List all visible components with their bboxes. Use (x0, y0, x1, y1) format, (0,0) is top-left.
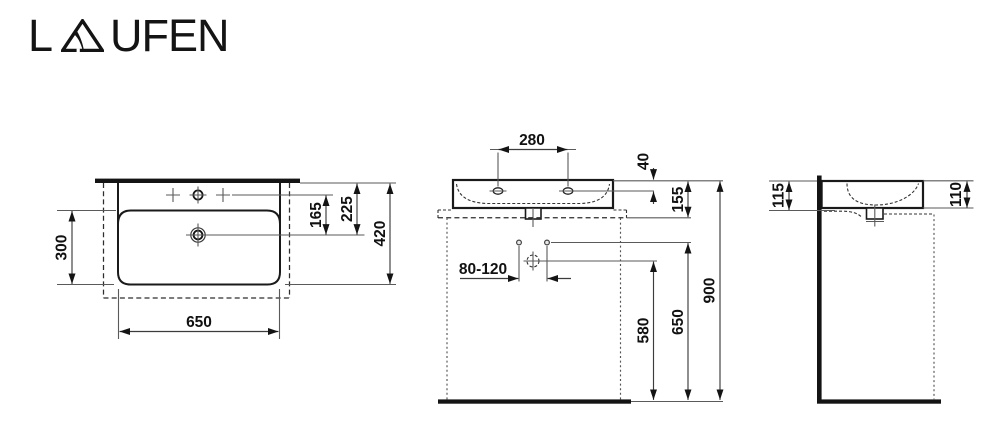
dim-front-rim-to-taphole: 40 (636, 153, 654, 204)
dim-front-taphole-spacing: 280 (499, 132, 568, 150)
svg-text:110: 110 (948, 182, 965, 207)
dim-front-drain-height: 580 (636, 262, 654, 400)
svg-text:580: 580 (636, 318, 653, 344)
dimension-drawing-sheet: L UFEN (0, 0, 1000, 446)
front-view: 280 40 155 80-120 580 (438, 132, 723, 404)
dim-plan-bowl-depth: 300 (54, 211, 73, 284)
dim-side-basin-height: 110 (948, 181, 967, 207)
dim-front-rim-to-underside: 155 (670, 182, 688, 218)
svg-text:155: 155 (670, 186, 687, 212)
plan-taphole-left-icon (166, 188, 180, 202)
svg-text:900: 900 (702, 278, 719, 304)
front-fixing-hole-right-icon (545, 240, 550, 245)
side-view: 115 110 (769, 176, 974, 404)
side-wall-line (817, 176, 822, 404)
side-floor-line (817, 399, 941, 403)
dim-front-rim-height: 900 (702, 181, 721, 400)
dim-plan-width: 650 (120, 314, 279, 332)
dim-front-fixings-height: 650 (670, 243, 688, 400)
svg-text:165: 165 (308, 202, 325, 228)
svg-text:650: 650 (186, 314, 212, 331)
dim-front-drain-offset-range: 80-120 (459, 261, 571, 279)
svg-text:40: 40 (636, 153, 653, 170)
svg-text:650: 650 (670, 309, 687, 335)
technical-drawing: 300 165 225 420 650 (0, 0, 1000, 446)
svg-text:225: 225 (339, 196, 356, 222)
svg-text:300: 300 (54, 235, 71, 261)
dim-plan-drain-to-taphole: 165 (308, 196, 326, 235)
svg-text:80-120: 80-120 (459, 261, 507, 278)
dim-side-front-edge-height: 115 (771, 182, 790, 210)
svg-text:420: 420 (372, 221, 389, 247)
plan-wall-edge (95, 179, 300, 183)
front-floor-line (438, 399, 631, 403)
front-fixing-hole-left-icon (517, 240, 522, 245)
dim-plan-drain-to-rear: 225 (339, 184, 357, 235)
dim-plan-depth-overall: 420 (372, 184, 390, 284)
plan-taphole-right-icon (216, 188, 230, 202)
plan-view: 300 165 225 420 650 (54, 179, 397, 339)
svg-text:280: 280 (519, 132, 545, 149)
side-basin-outline (822, 181, 923, 208)
svg-text:115: 115 (771, 183, 788, 208)
